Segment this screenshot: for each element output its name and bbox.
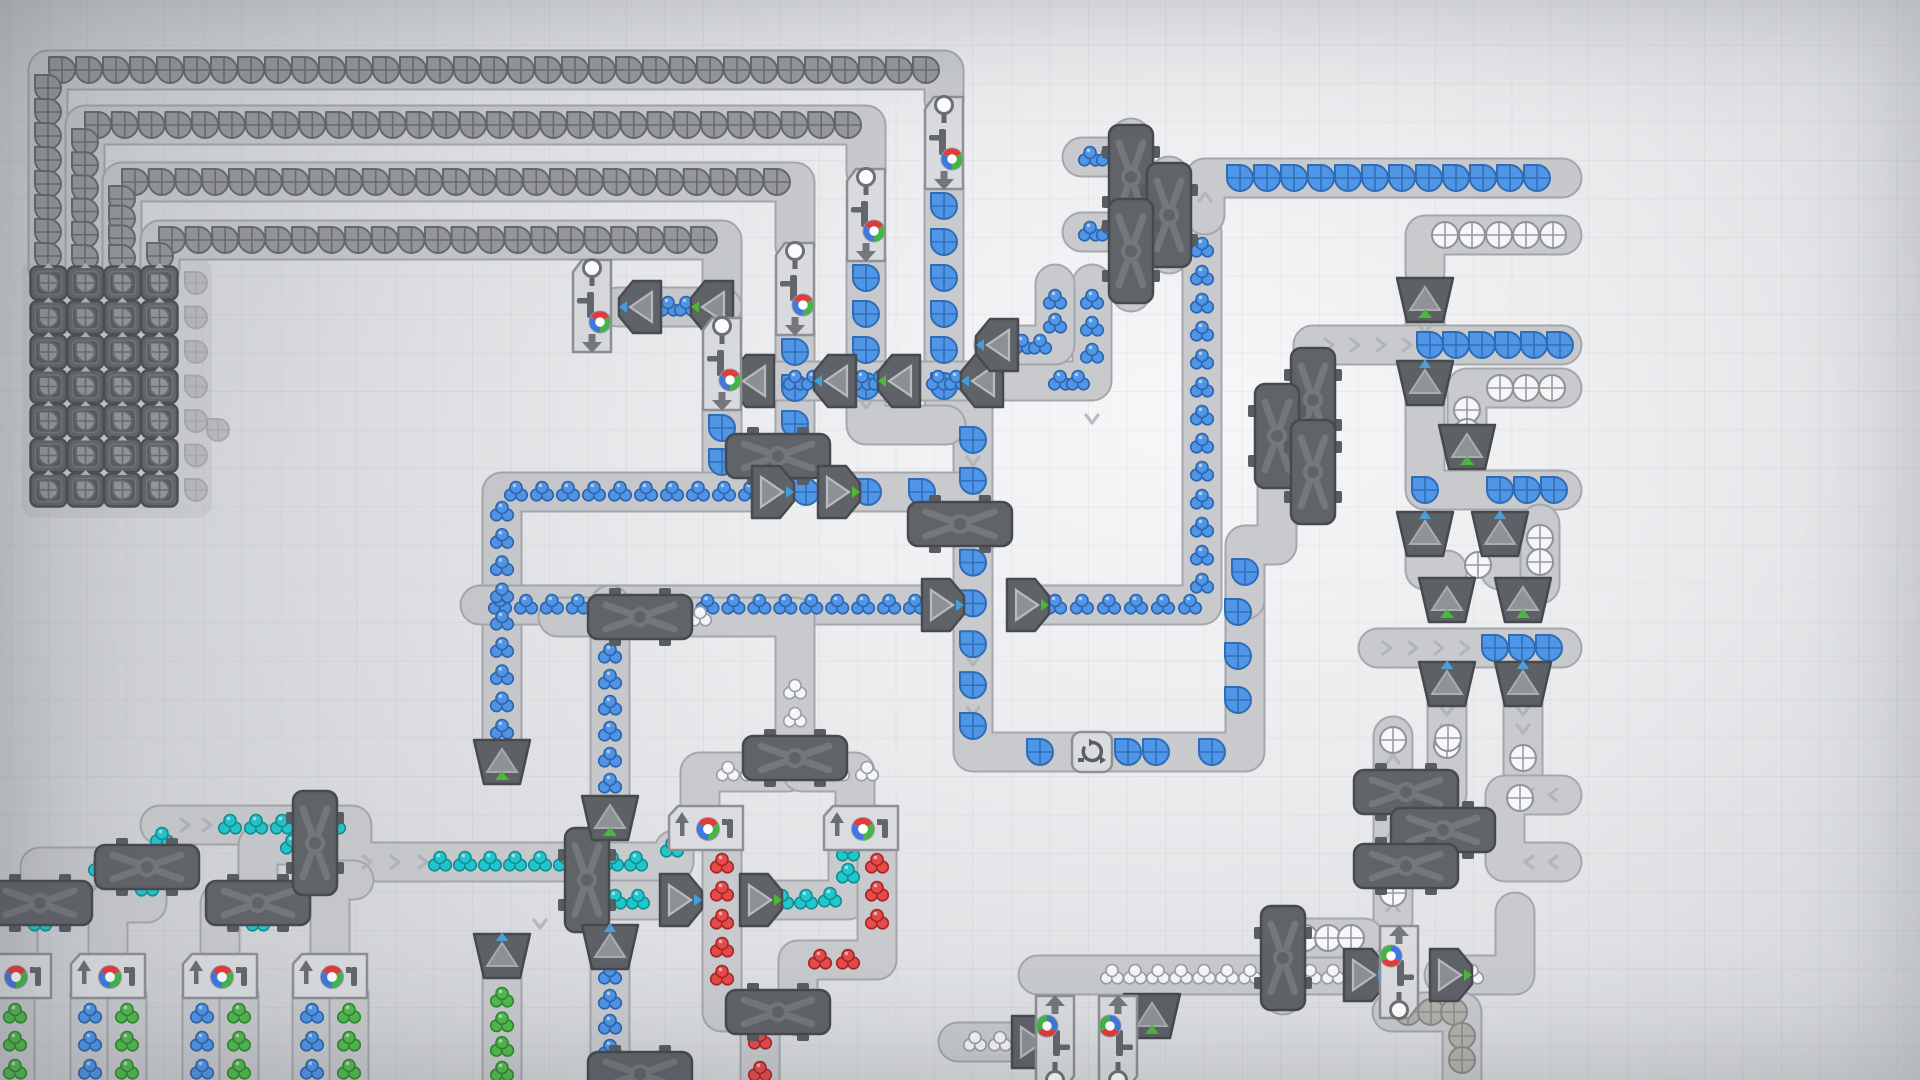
vignette-overlay <box>0 0 1920 1080</box>
game-viewport[interactable]: shapez-2-factory-view <box>0 0 1920 1080</box>
